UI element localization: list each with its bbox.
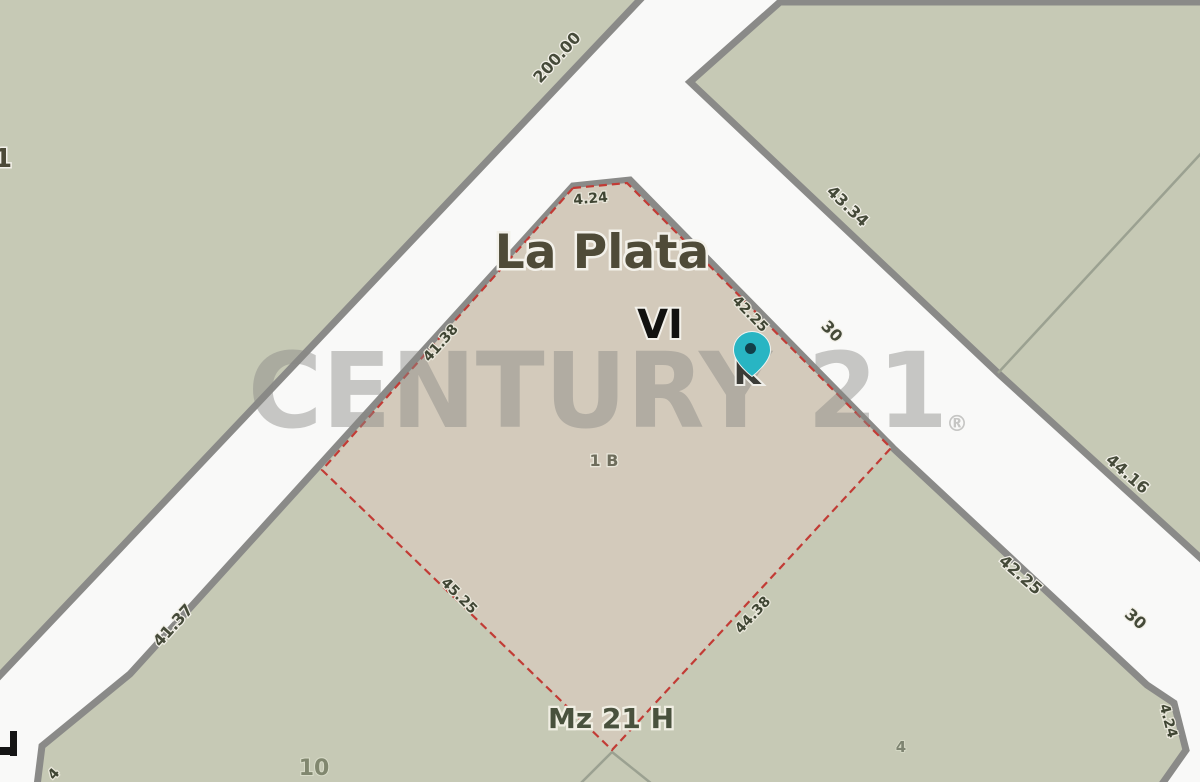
zone-label: VI <box>637 302 683 348</box>
parcel-lot-label: 1 B <box>590 451 619 470</box>
cropped-left-edge-label: 1 <box>0 144 12 174</box>
pin-center-dot <box>745 343 756 354</box>
city-label: La Plata <box>495 225 709 280</box>
watermark-registered-icon: ® <box>946 412 968 437</box>
cadastral-map: CENTURY 21 ® 200.00 41.37 43.34 44.16 42… <box>0 0 1200 782</box>
neighbor-lot-10-label: 10 <box>299 756 330 781</box>
parcel-dim-top: 4.24 <box>573 190 609 209</box>
watermark-text: CENTURY 21 <box>248 330 948 452</box>
neighbor-lot-4-label: 4 <box>896 738 906 756</box>
manzana-label: Mz 21 H <box>548 702 674 735</box>
